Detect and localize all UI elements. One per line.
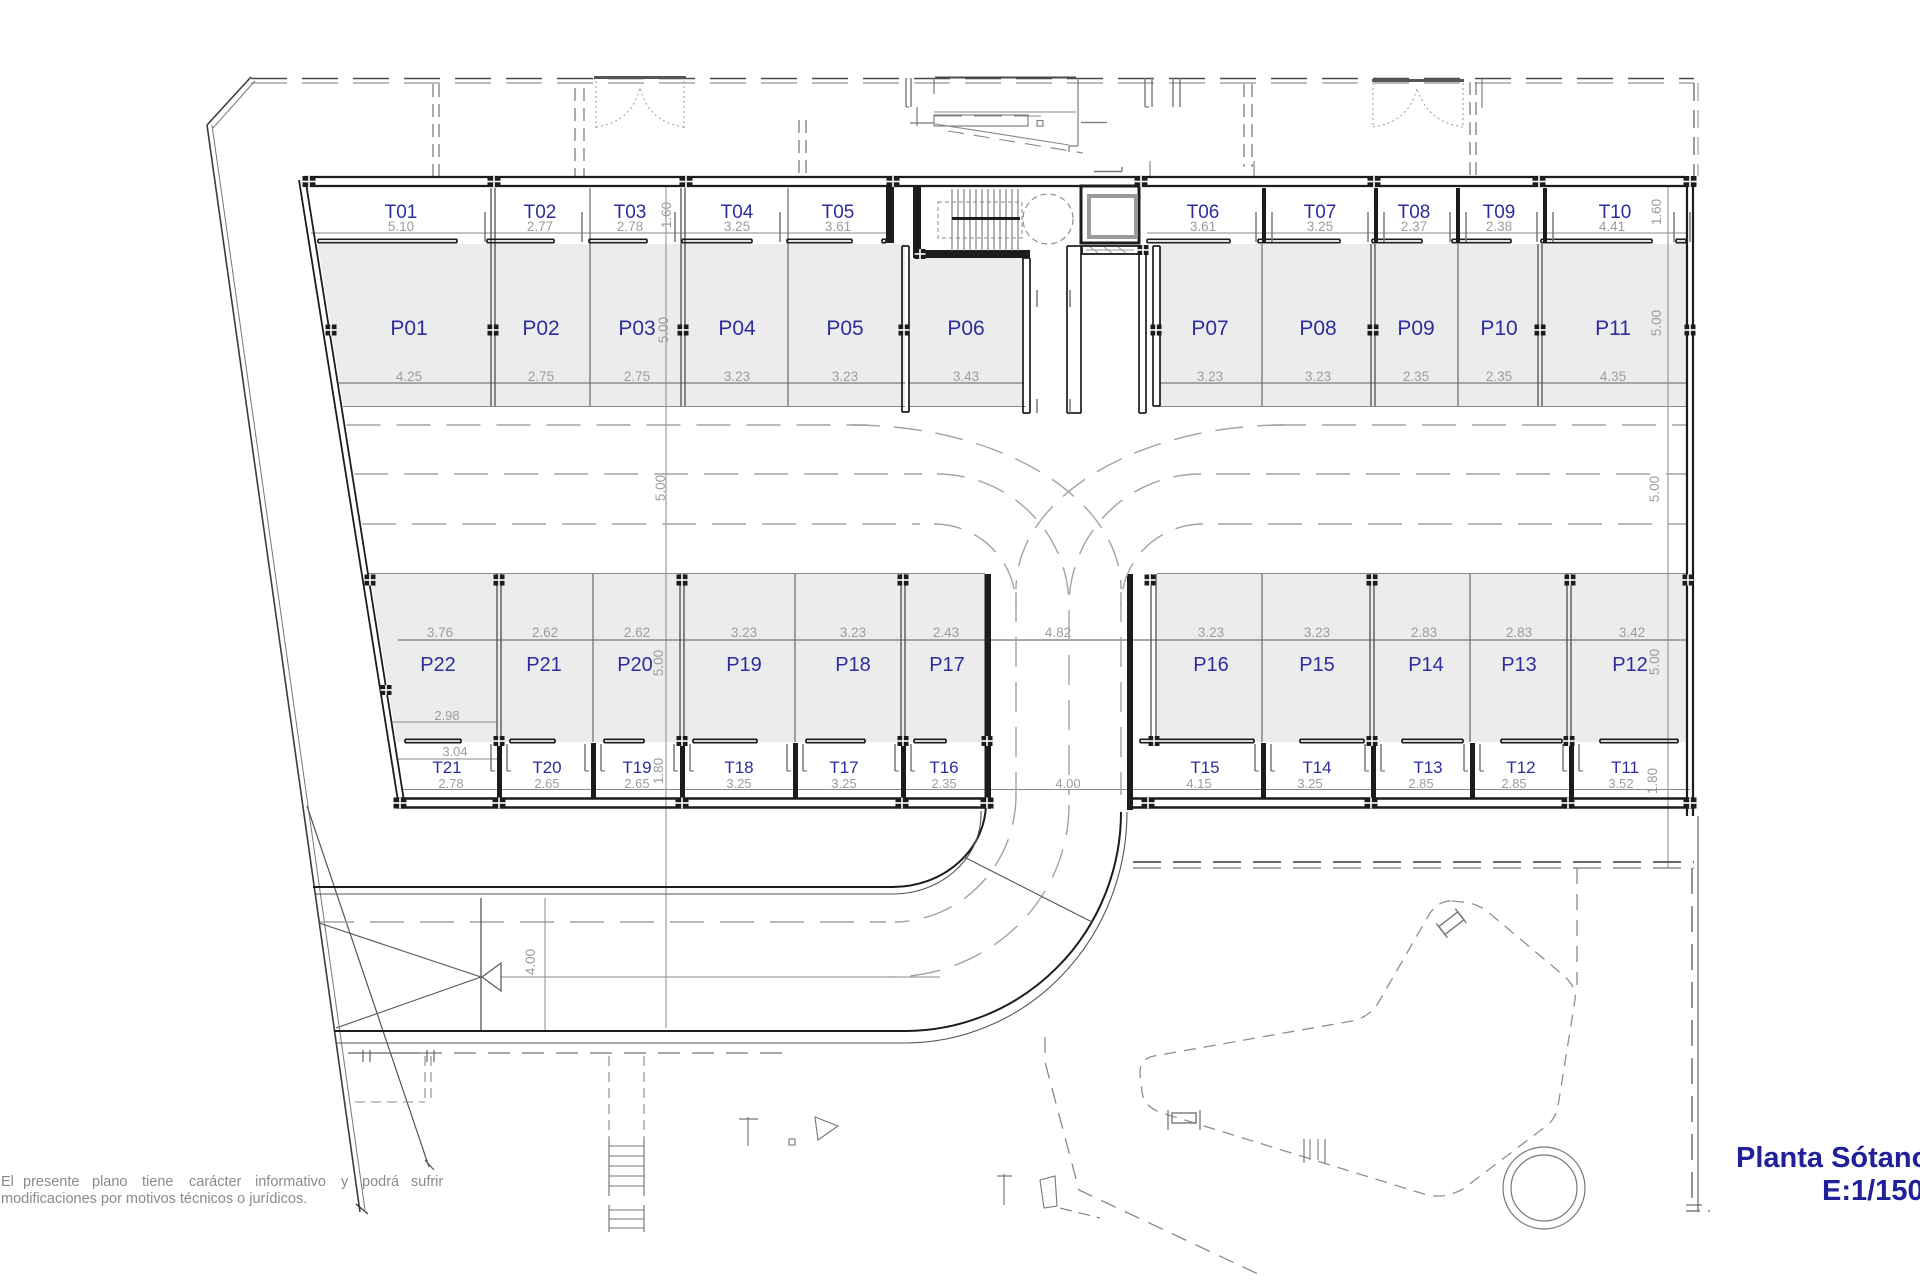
svg-text:2.83: 2.83 [1506,625,1532,640]
svg-text:P16: P16 [1193,654,1229,676]
svg-text:3.25: 3.25 [724,219,750,234]
svg-text:T21: T21 [432,758,461,777]
svg-text:4.00: 4.00 [1055,776,1080,791]
svg-text:3.04: 3.04 [442,744,467,759]
svg-text:1.60: 1.60 [659,202,674,228]
svg-text:3.43: 3.43 [953,369,979,384]
svg-text:P08: P08 [1299,317,1336,340]
svg-text:2.78: 2.78 [438,776,463,791]
svg-text:P20: P20 [617,654,653,676]
svg-text:T17: T17 [829,758,858,777]
svg-text:2.65: 2.65 [624,776,649,791]
svg-text:4.82: 4.82 [1045,625,1071,640]
svg-text:5.00: 5.00 [653,475,668,501]
svg-text:2.65: 2.65 [534,776,559,791]
svg-text:2.98: 2.98 [434,708,459,723]
svg-text:Planta Sótano: Planta Sótano [1736,1142,1920,1174]
svg-text:3.23: 3.23 [1304,625,1330,640]
svg-text:P14: P14 [1408,654,1444,676]
svg-text:5.10: 5.10 [388,219,414,234]
svg-text:2.75: 2.75 [528,369,554,384]
svg-text:P06: P06 [947,317,984,340]
svg-text:P04: P04 [718,317,756,340]
svg-text:3.25: 3.25 [1297,776,1322,791]
svg-text:2.62: 2.62 [624,625,650,640]
svg-text:3.42: 3.42 [1619,625,1645,640]
svg-text:1.80: 1.80 [651,758,666,784]
svg-text:P19: P19 [726,654,762,676]
svg-text:T12: T12 [1506,758,1535,777]
svg-text:T13: T13 [1413,758,1442,777]
svg-text:5.00: 5.00 [651,650,666,676]
svg-text:2.83: 2.83 [1411,625,1437,640]
svg-text:P05: P05 [826,317,863,340]
svg-text:3.25: 3.25 [1307,219,1333,234]
svg-text:T11: T11 [1611,758,1639,777]
svg-text:modificaciones por motivos téc: modificaciones por motivos técnicos o ju… [1,1191,307,1207]
svg-text:P22: P22 [420,654,456,676]
svg-text:2.85: 2.85 [1408,776,1433,791]
svg-text:2.43: 2.43 [933,625,959,640]
svg-text:3.76: 3.76 [427,625,453,640]
svg-text:2.75: 2.75 [624,369,650,384]
svg-text:3.23: 3.23 [724,369,750,384]
svg-text:2.85: 2.85 [1501,776,1526,791]
svg-text:4.00: 4.00 [523,949,538,975]
svg-text:P01: P01 [390,317,427,340]
svg-text:3.61: 3.61 [1190,219,1216,234]
svg-text:2.77: 2.77 [527,219,553,234]
svg-text:T14: T14 [1302,758,1331,777]
svg-text:1.60: 1.60 [1649,199,1664,225]
svg-text:3.25: 3.25 [831,776,856,791]
svg-text:P21: P21 [526,654,562,676]
svg-text:2.78: 2.78 [617,219,643,234]
svg-text:4.25: 4.25 [396,369,422,384]
svg-text:3.23: 3.23 [1197,369,1223,384]
svg-text:P07: P07 [1191,317,1228,340]
svg-text:E:1/150: E:1/150 [1822,1175,1920,1207]
svg-text:4.35: 4.35 [1600,369,1626,384]
svg-text:1.80: 1.80 [1645,768,1660,794]
svg-text:T16: T16 [929,758,958,777]
svg-text:T18: T18 [724,758,753,777]
svg-text:T15: T15 [1190,758,1219,777]
svg-text:2.62: 2.62 [532,625,558,640]
svg-text:2.35: 2.35 [931,776,956,791]
svg-text:2.35: 2.35 [1486,369,1512,384]
svg-text:P15: P15 [1299,654,1335,676]
svg-text:3.25: 3.25 [726,776,751,791]
svg-text:5.00: 5.00 [1647,476,1662,502]
svg-text:3.23: 3.23 [1198,625,1224,640]
svg-text:5.00: 5.00 [1647,649,1662,675]
svg-text:4.15: 4.15 [1186,776,1211,791]
svg-text:T20: T20 [532,758,561,777]
svg-text:P03: P03 [618,317,655,340]
svg-text:P17: P17 [929,654,965,676]
svg-text:P12: P12 [1612,654,1648,676]
svg-text:3.23: 3.23 [832,369,858,384]
svg-text:P09: P09 [1397,317,1434,340]
svg-text:2.35: 2.35 [1403,369,1429,384]
svg-text:3.61: 3.61 [825,219,851,234]
svg-text:5.00: 5.00 [656,317,671,343]
svg-text:4.41: 4.41 [1599,219,1625,234]
svg-text:Elpresenteplanotienecarácterin: Elpresenteplanotienecarácterinformativoy… [1,1174,443,1190]
svg-text:P02: P02 [522,317,559,340]
svg-text:3.23: 3.23 [840,625,866,640]
svg-text:2.38: 2.38 [1486,219,1512,234]
svg-text:3.23: 3.23 [1305,369,1331,384]
svg-text:3.23: 3.23 [731,625,757,640]
svg-text:P13: P13 [1501,654,1537,676]
svg-text:5.00: 5.00 [1649,310,1664,336]
svg-text:2.37: 2.37 [1401,219,1427,234]
svg-text:P18: P18 [835,654,871,676]
svg-text:P11: P11 [1595,317,1631,340]
svg-text:P10: P10 [1480,317,1517,340]
svg-text:T19: T19 [622,758,651,777]
svg-text:3.52: 3.52 [1608,776,1633,791]
